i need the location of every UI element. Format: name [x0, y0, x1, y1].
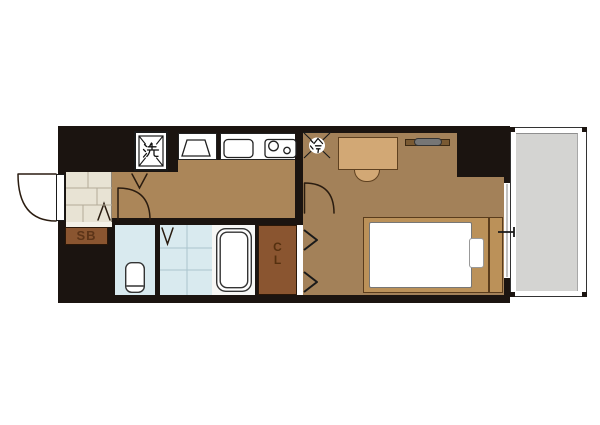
- floor-plan: SB C L: [0, 0, 600, 425]
- closet-opening: [297, 225, 303, 295]
- kitchen-counter: [220, 133, 300, 160]
- balcony-corner-tick: [582, 292, 587, 297]
- closet-label: C L: [258, 241, 297, 267]
- shoe-box-label: SB: [76, 228, 96, 243]
- balcony-window: [504, 183, 510, 278]
- entrance-door: [56, 174, 65, 221]
- balcony-corner-tick: [582, 127, 587, 132]
- entrance-door-arc: [18, 174, 56, 221]
- bed-pillow: [469, 238, 484, 268]
- tv: [414, 138, 442, 146]
- range-hood-shelf: [178, 133, 217, 160]
- bathtub-area: [212, 225, 255, 295]
- room-bathroom: [160, 225, 212, 295]
- desk: [338, 137, 398, 170]
- wall-door-stub: [295, 213, 303, 225]
- window-cap-bottom: [504, 278, 510, 303]
- shoe-box: SB: [65, 227, 108, 245]
- room-hallway-kitchen: [112, 172, 295, 218]
- balcony-corner-tick: [510, 292, 515, 297]
- bed-mattress: [369, 222, 472, 288]
- washing-machine-space: [134, 131, 168, 171]
- wall-kitchen-bedroom: [295, 126, 303, 183]
- closet-label-l: L: [258, 254, 297, 267]
- kitchen-floor-strip: [178, 160, 295, 172]
- bed-headboard-line: [488, 218, 490, 292]
- room-toilet: [115, 225, 155, 295]
- room-entry: [66, 172, 112, 222]
- balcony-deck: [516, 133, 578, 291]
- balcony-corner-tick: [510, 127, 515, 132]
- wall-bedroom-corner: [457, 126, 510, 177]
